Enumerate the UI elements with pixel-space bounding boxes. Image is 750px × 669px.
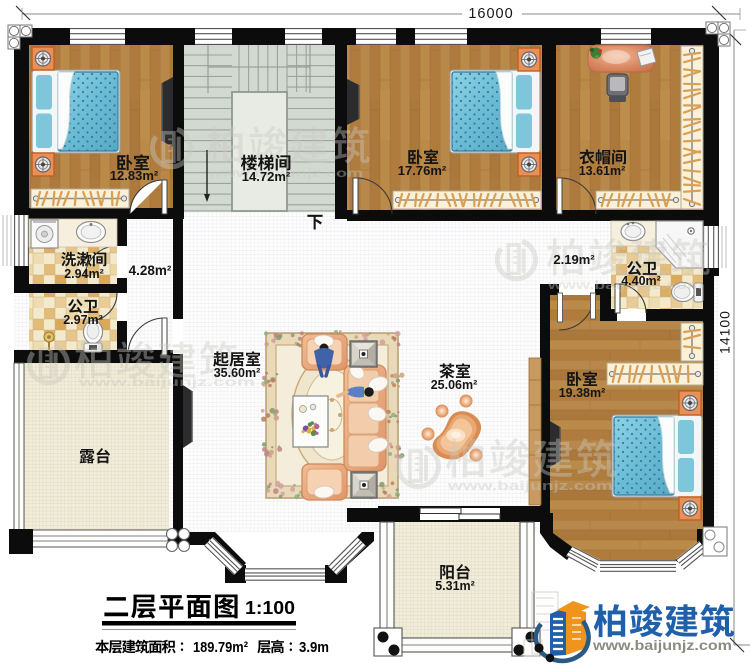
- svg-text:25.06m²: 25.06m²: [431, 378, 478, 392]
- svg-text:2.19m²: 2.19m²: [553, 252, 595, 267]
- svg-text:17.76m²: 17.76m²: [398, 163, 447, 178]
- svg-text:4.40m²: 4.40m²: [621, 274, 661, 288]
- svg-text:12.83m²: 12.83m²: [110, 168, 159, 183]
- svg-text:2.97m²: 2.97m²: [63, 313, 103, 327]
- svg-text:14.72m²: 14.72m²: [242, 169, 291, 184]
- svg-text:2.94m²: 2.94m²: [64, 267, 104, 281]
- svg-text:189.79m²: 189.79m²: [193, 639, 248, 656]
- svg-text:4.28m²: 4.28m²: [129, 263, 172, 278]
- svg-text:13.61m²: 13.61m²: [579, 164, 626, 178]
- svg-text:14100: 14100: [717, 310, 733, 354]
- svg-text:www.baijunjz.com: www.baijunjz.com: [447, 478, 613, 493]
- svg-text:1:100: 1:100: [245, 597, 295, 618]
- svg-text:www.baijunjz.com: www.baijunjz.com: [592, 638, 732, 653]
- svg-text:16000: 16000: [468, 6, 513, 22]
- svg-text:19.38m²: 19.38m²: [559, 386, 606, 400]
- svg-text:35.60m²: 35.60m²: [214, 366, 261, 380]
- svg-text:3.9m: 3.9m: [299, 639, 329, 656]
- svg-text:5.31m²: 5.31m²: [435, 579, 475, 593]
